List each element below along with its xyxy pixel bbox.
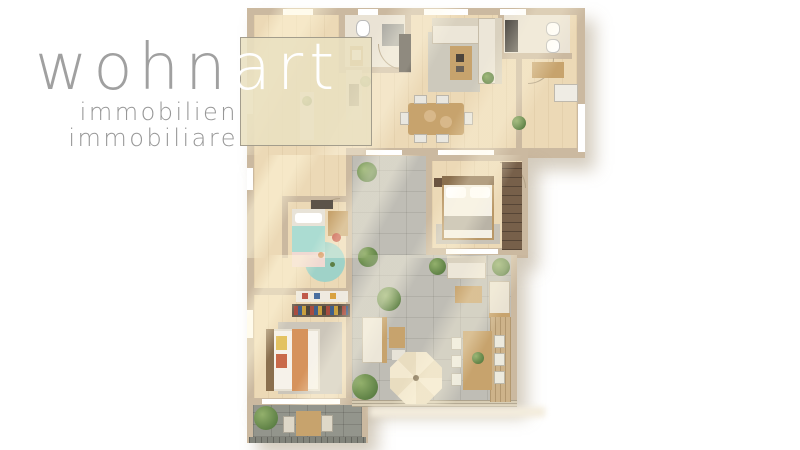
outdoor-chair-4 [494,335,505,348]
dining-chair-4 [436,134,449,143]
kids-desk [328,211,348,236]
bedroom2-pillow-yellow [276,336,287,350]
outdoor-chair-2 [451,355,462,368]
wall-hall-divider [516,59,522,155]
window-left-2 [247,168,253,190]
kids-dresser [311,200,333,209]
kids-toy-2 [330,262,335,267]
dining-chair-6 [464,112,473,125]
coffee-table-decor-2 [456,66,464,72]
hall-wardrobe [554,84,578,102]
wall-terrace-right [511,255,517,405]
living-plant [482,72,494,84]
balcony-table [296,411,321,436]
dining-chair-3 [414,134,427,143]
art-item-3 [330,293,336,299]
dining-chair-5 [400,112,409,125]
wall-master-left [426,155,432,255]
terrace-armchair-frame [382,317,387,363]
balcony-chair-1 [283,416,295,433]
bedroom2-pillow-orange [276,354,287,368]
window-slider-1 [366,150,402,155]
bedroom2-headboard [266,329,274,391]
lounger [489,281,510,317]
bedroom2-runner [292,329,308,391]
sofa-back-right [495,18,502,84]
hall-plant [512,116,526,130]
window-top-1 [283,9,313,15]
window-right-1 [578,104,585,152]
balcony-bush [254,406,278,430]
shower-glass-panel [399,34,411,72]
window-master [446,249,498,254]
logo-wordmark: wohnart [35,36,340,100]
kids-chair [332,233,341,242]
coffee-table [450,46,472,80]
dining-chair-2 [436,95,449,104]
logo-text-art: art [232,31,341,105]
window-bedroom2 [262,399,340,404]
dining-stool-1 [424,110,436,122]
floor-plan-screenshot: wohnart immobilien immobiliare [0,0,800,450]
terrace-plant-3 [358,247,378,267]
bookshelf-books [294,306,348,315]
bidet-bath2 [546,39,560,53]
hall-bench [532,62,564,78]
outdoor-sofa-plant [429,258,446,275]
table-plant [472,352,484,364]
lounger-plant [492,258,510,276]
logo-subtitle-it: immobiliare [0,125,238,151]
parasol-pole [413,375,419,381]
palm-plant [352,374,378,400]
dining-stool-2 [440,116,452,128]
terrace-shadow-band [370,407,545,417]
master-pillow-1 [446,187,466,198]
toilet-bath2 [546,22,560,36]
kids-blanket-mint [292,226,325,252]
toilet-bath1 [356,20,370,37]
window-top-4 [500,9,526,15]
dining-table [408,103,464,135]
logo-text-wohn: wohn [35,31,232,105]
kids-toy-1 [318,252,324,258]
master-nightstand [434,178,442,187]
outdoor-chair-3 [451,373,462,386]
terrace-side-table [389,327,405,348]
master-pillow-2 [470,187,490,198]
master-throw [444,216,492,230]
master-wardrobe [502,162,522,250]
dining-chair-1 [414,95,427,104]
outdoor-chair-6 [494,371,505,384]
art-item-1 [302,293,308,299]
outdoor-sofa-back [447,256,486,263]
terrace-plant-2 [357,162,377,182]
window-slider-2 [438,150,494,155]
logo-subtitle-de: immobilien [0,99,238,125]
balcony-chair-2 [321,415,333,432]
window-top-2 [358,9,378,15]
window-left-3 [247,310,253,338]
outdoor-coffee-table [455,286,482,303]
master-headboard [442,176,494,185]
terrace-plant-1 [377,287,401,311]
outdoor-chair-1 [451,337,462,350]
window-top-3 [424,9,468,15]
logo-subtitles: immobilien immobiliare [0,99,238,151]
art-item-2 [314,293,320,299]
balcony-railing [249,437,366,443]
outdoor-chair-5 [494,353,505,366]
coffee-table-decor-1 [456,54,464,62]
washer-stack [505,20,518,52]
kids-pillow [295,213,322,223]
wall-kids-left [282,196,288,258]
